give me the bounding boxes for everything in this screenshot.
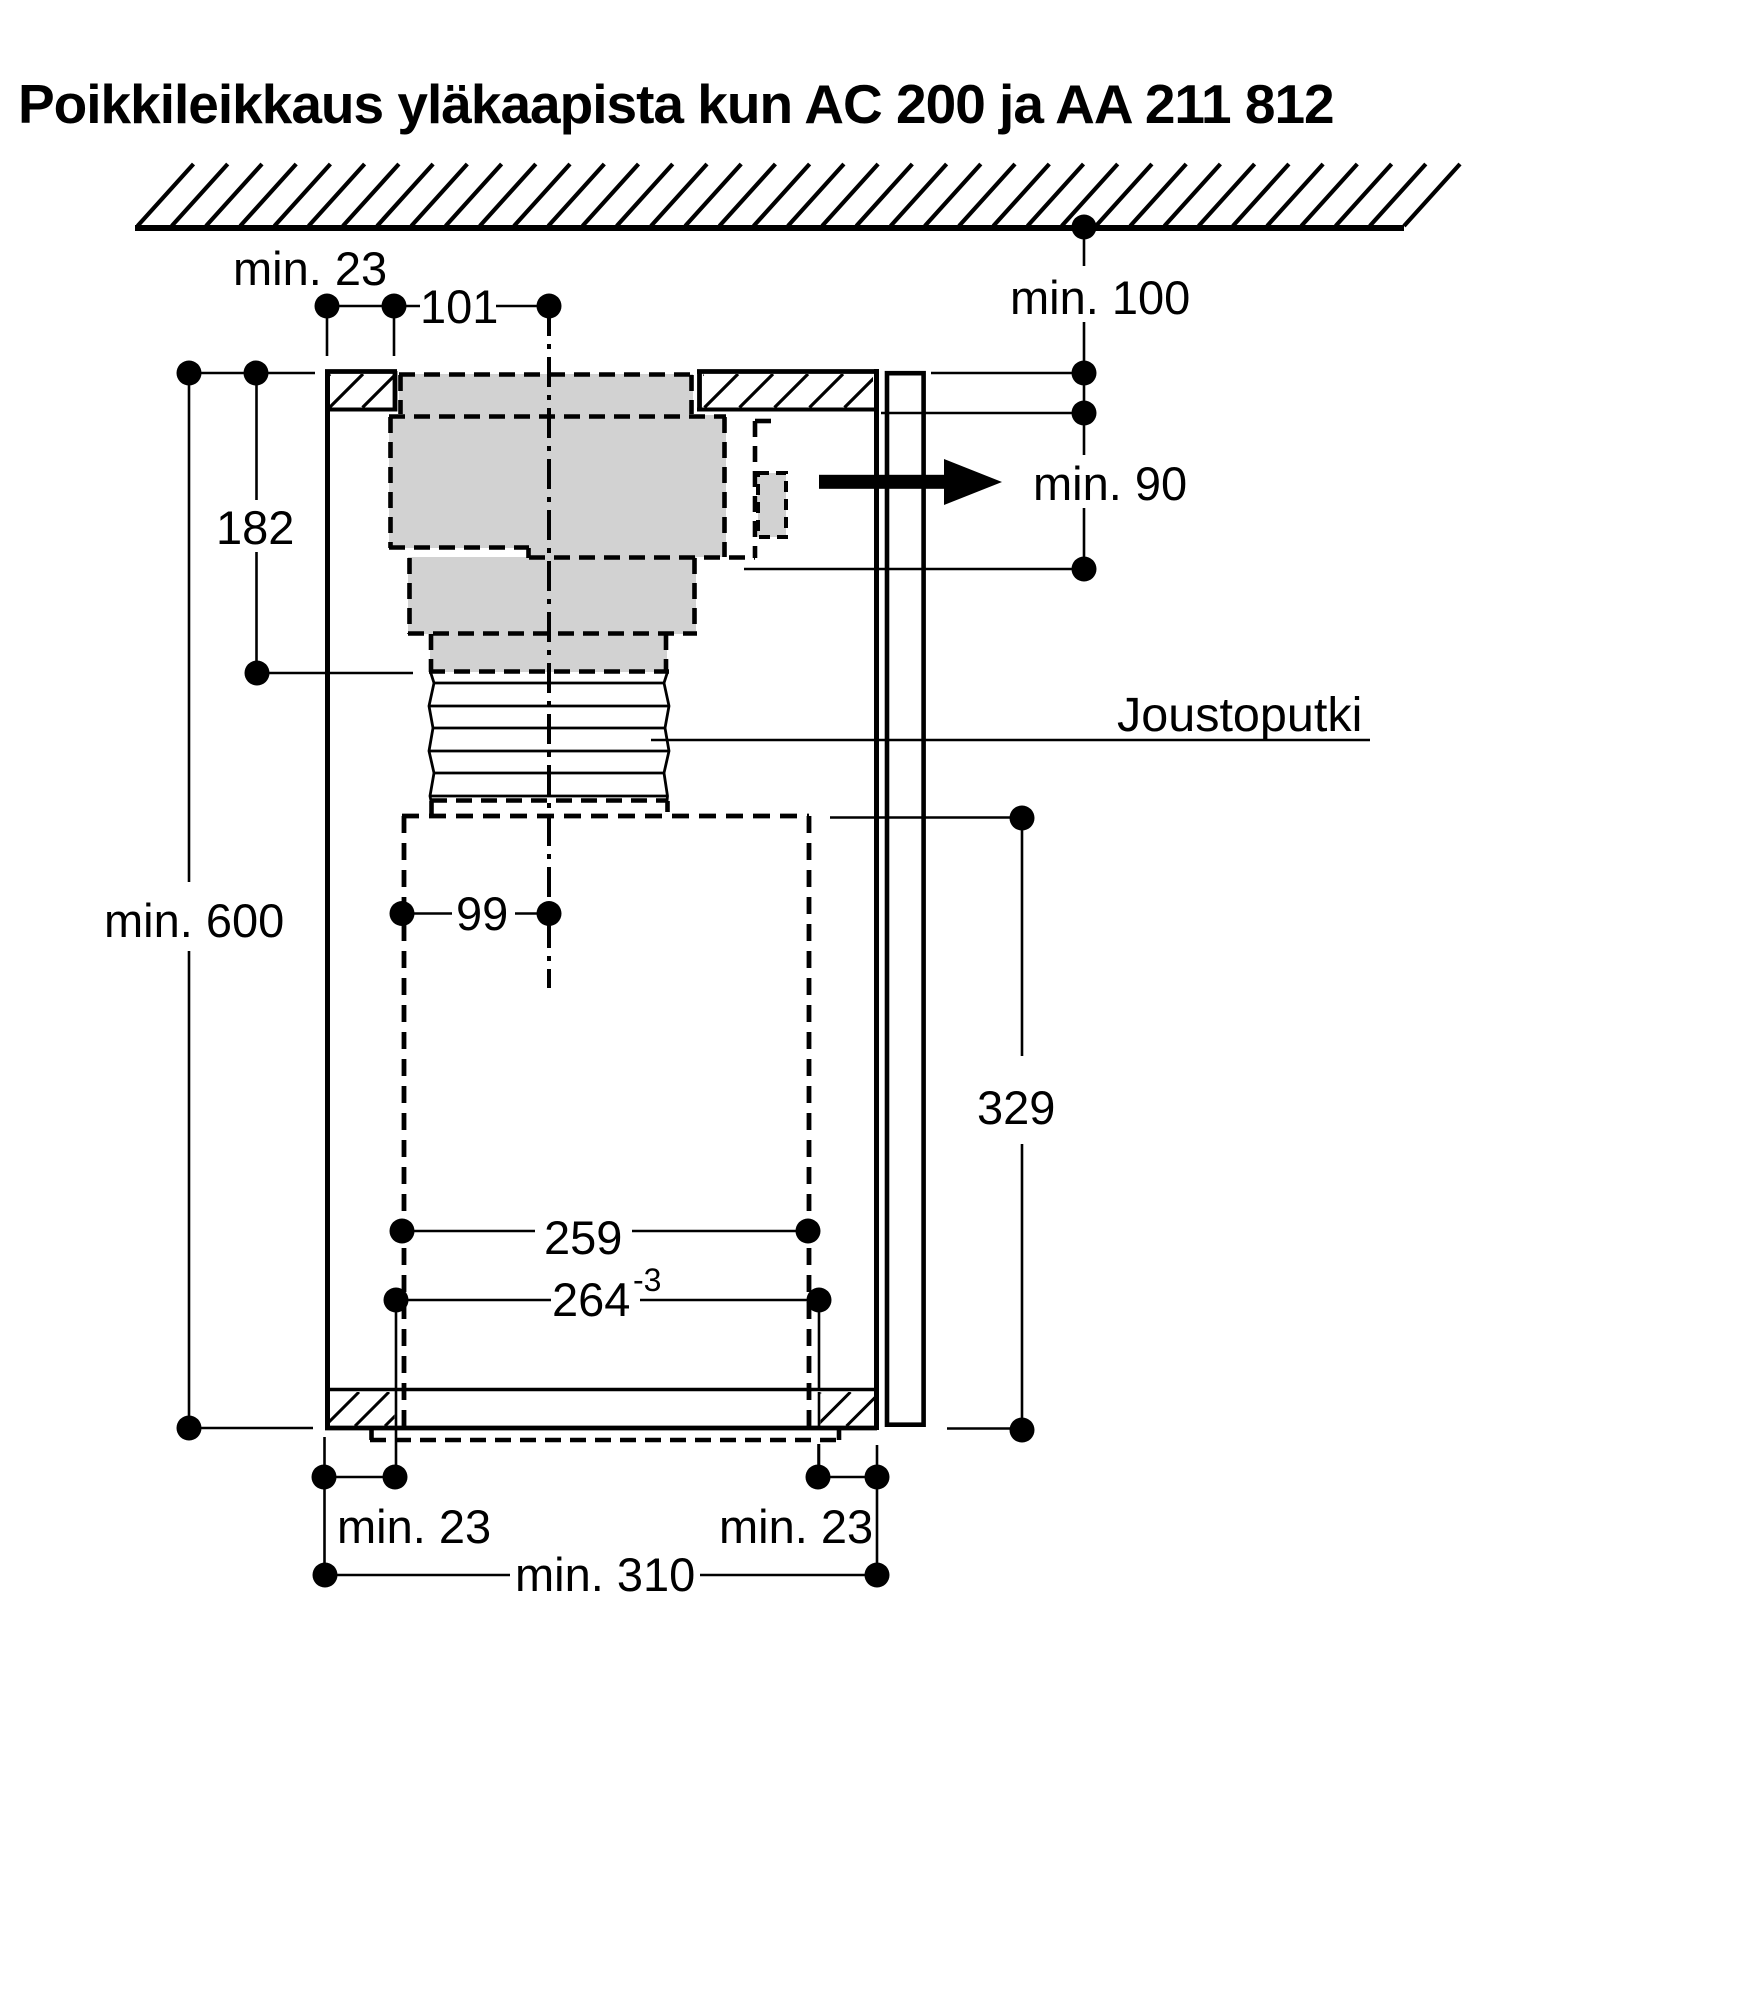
svg-text:Poikkileikkaus yläkaapista kun: Poikkileikkaus yläkaapista kun AC 200 ja… — [18, 73, 1334, 135]
svg-text:-3: -3 — [633, 1262, 661, 1298]
svg-text:329: 329 — [977, 1081, 1055, 1134]
svg-text:259: 259 — [544, 1211, 622, 1264]
svg-text:min. 100: min. 100 — [1010, 271, 1190, 324]
svg-text:min. 310: min. 310 — [515, 1548, 695, 1601]
svg-text:Joustoputki: Joustoputki — [1117, 688, 1362, 742]
svg-text:182: 182 — [216, 501, 294, 554]
svg-text:101: 101 — [420, 280, 498, 333]
svg-text:min. 23: min. 23 — [233, 242, 387, 295]
svg-text:min. 90: min. 90 — [1033, 457, 1187, 510]
svg-text:min. 23: min. 23 — [337, 1500, 491, 1553]
svg-text:264: 264 — [552, 1273, 630, 1326]
svg-text:min. 23: min. 23 — [719, 1500, 873, 1553]
svg-text:99: 99 — [456, 887, 508, 940]
svg-text:min. 600: min. 600 — [104, 894, 284, 947]
